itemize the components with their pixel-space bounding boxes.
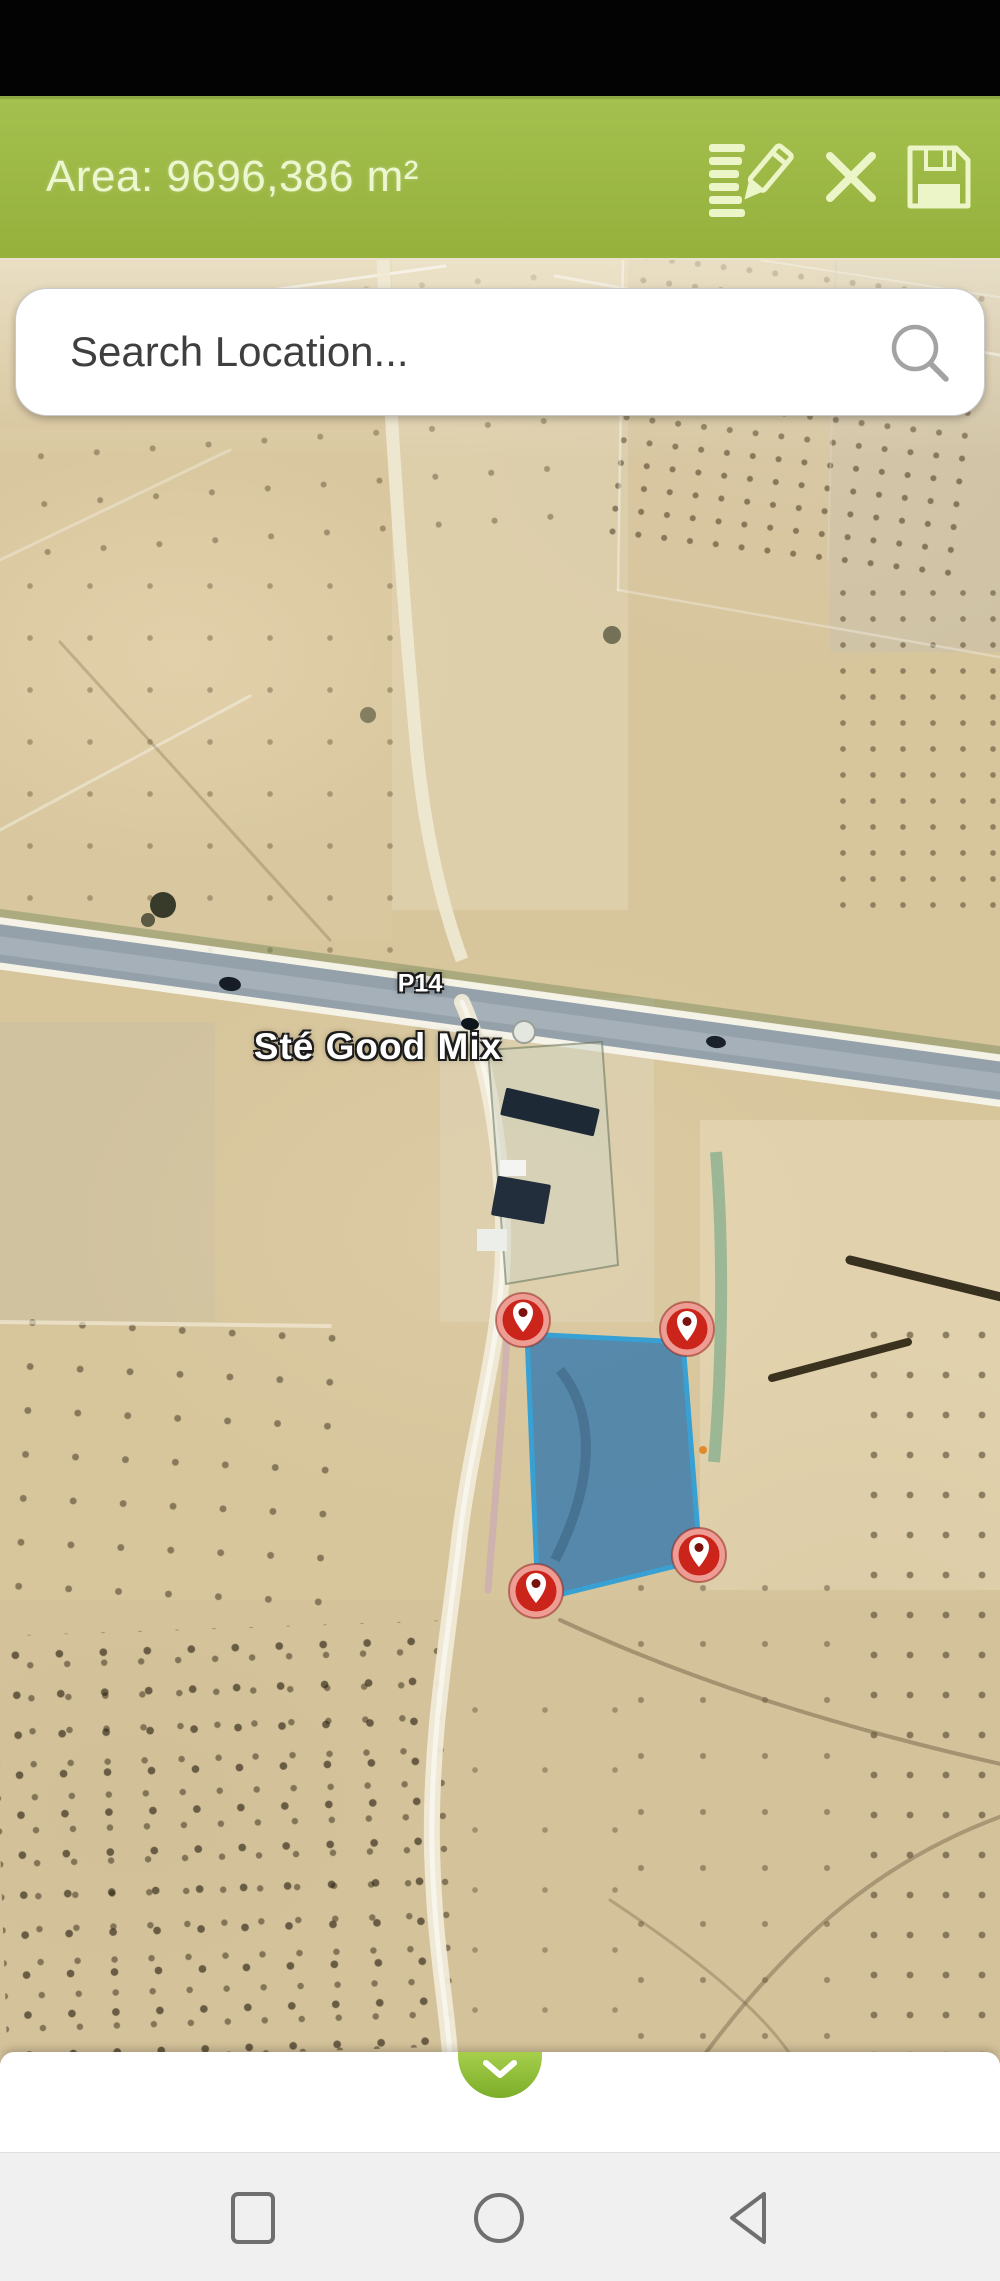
bottom-sheet [0, 2052, 1000, 2152]
close-icon [822, 148, 880, 206]
place-label: Sté Good Mix [254, 1026, 502, 1068]
app-header: Area: 9696,386 m² [0, 96, 1000, 258]
chevron-down-icon [482, 2060, 518, 2080]
area-readout: Area: 9696,386 m² [46, 152, 696, 202]
back-icon [721, 2188, 777, 2248]
map-pin-marker[interactable] [509, 1564, 563, 1618]
home-button[interactable] [419, 2153, 579, 2281]
save-icon [905, 143, 973, 211]
track-speck [699, 1446, 707, 1454]
android-nav-bar [0, 2152, 1000, 2281]
vegetation-strip [714, 1152, 721, 1462]
edit-note-button[interactable] [696, 122, 806, 232]
search-input[interactable] [68, 327, 888, 377]
header-actions [696, 122, 982, 232]
search-bar [15, 288, 985, 416]
app-screen: Area: 9696,386 m² [0, 0, 1000, 2281]
map-canvas[interactable]: P14 Sté Good Mix [0, 258, 1000, 2052]
home-icon [471, 2190, 527, 2246]
map-pin-marker[interactable] [672, 1528, 726, 1582]
collapse-sheet-button[interactable] [458, 2052, 542, 2098]
road-label: P14 [398, 970, 442, 999]
status-bar [0, 0, 1000, 96]
cancel-button[interactable] [806, 127, 896, 227]
edit-note-icon [705, 133, 797, 221]
recents-button[interactable] [173, 2153, 333, 2281]
map-annotation-layer [0, 260, 1000, 2052]
map-pin-marker[interactable] [496, 1293, 550, 1347]
map-pin-marker[interactable] [660, 1302, 714, 1356]
save-button[interactable] [896, 127, 982, 227]
search-icon[interactable] [888, 321, 950, 383]
recents-icon [225, 2188, 281, 2248]
back-button[interactable] [669, 2153, 829, 2281]
